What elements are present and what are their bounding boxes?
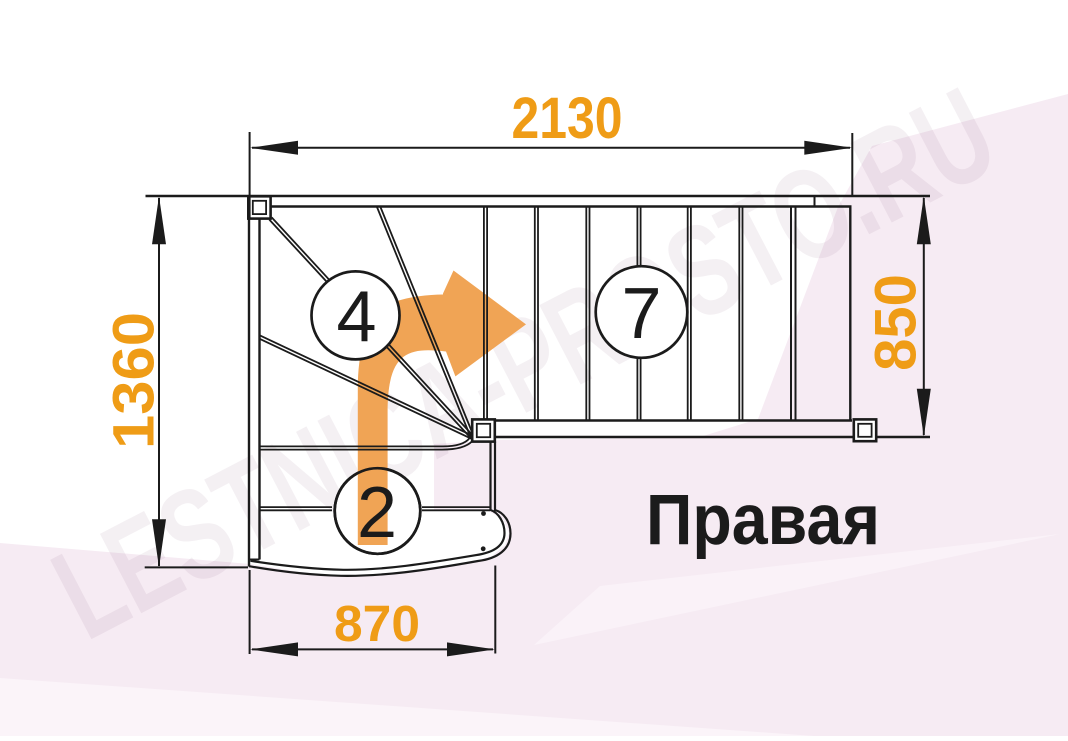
svg-text:4: 4 [336, 278, 376, 358]
svg-text:850: 850 [864, 274, 929, 371]
svg-text:2130: 2130 [512, 86, 623, 151]
svg-text:1360: 1360 [102, 312, 167, 449]
svg-text:2: 2 [357, 473, 397, 553]
svg-text:7: 7 [621, 274, 661, 354]
svg-text:Правая: Правая [646, 481, 880, 560]
svg-text:870: 870 [334, 595, 420, 652]
